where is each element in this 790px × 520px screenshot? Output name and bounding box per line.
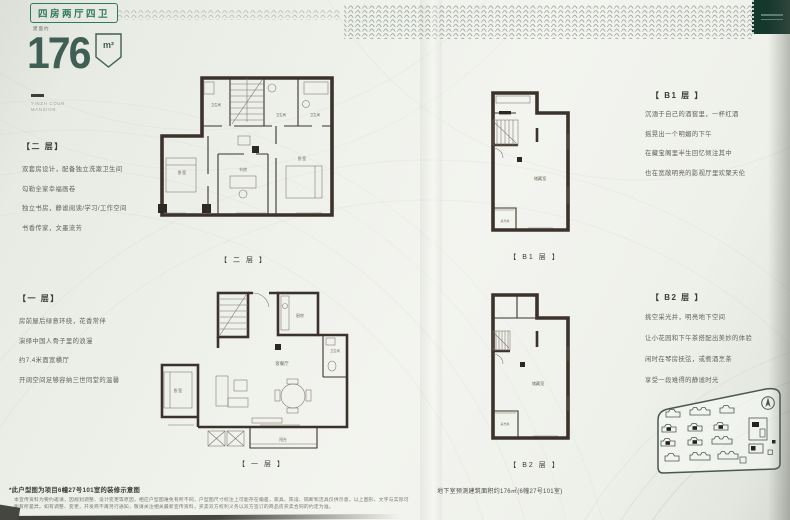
caption-b2: 【 B2 层 】 [478, 460, 592, 470]
page-fold-shadow [420, 0, 442, 520]
b1-line: 在藏宝阁里半生回忆倾注其中 [645, 148, 745, 157]
area-unit: m² [103, 40, 114, 50]
walls-b1 [493, 93, 568, 230]
disclaimer-line1: 本宣传资料为要约邀请，因规划调整、设计变更等原因，相应户型图难免有所不同，户型图… [14, 497, 724, 504]
walls-2f [158, 78, 332, 215]
floor-plan-1f: 卧室 客餐厅 厨房 卫生间 阳台 [160, 286, 364, 462]
floor1-line: 约7.4米面宽横厅 [19, 355, 119, 364]
room-label: 卧室 [178, 169, 186, 176]
b1-line: 摇晃出一个明媚的下午 [645, 129, 745, 138]
room-label: 储藏室 [532, 380, 545, 387]
room-label: 卫生间 [276, 112, 287, 117]
caption-1f: 【 一 层 】 [160, 459, 364, 469]
stairs-icon [493, 120, 518, 145]
section-floor2-heading: 【二 层】 [22, 141, 64, 152]
walls-1f [162, 293, 347, 427]
caption-b1: 【 B1 层 】 [478, 252, 592, 262]
room-label: 采光井 [500, 218, 509, 223]
floor1-line: 演绎中国人骨子里的浪漫 [19, 336, 119, 345]
room-label: 卧室 [174, 387, 182, 394]
floor-plan-b2: 储藏室 采光井 [478, 291, 592, 459]
room-label: 客餐厅 [275, 360, 289, 367]
section-b1-lines: 沉湎于自己的酒窖里，一杯红酒 摇晃出一个明媚的下午 在藏宝阁里半生回忆倾注其中 … [645, 98, 745, 177]
title-badge: 四房两厅四卫 [30, 3, 118, 23]
area-value: 176 [27, 28, 89, 79]
floor2-line: 勾勒全家幸福画卷 [22, 184, 127, 193]
brand-caption: YINZH COUR MANSION [31, 101, 65, 112]
room-label: 卫生间 [211, 102, 222, 107]
b2-line: 挑空采光井，明亮地下空间 [645, 312, 752, 321]
b2-line: 闲时在琴房抚弦，或煮酒烹茶 [645, 354, 752, 363]
disclaimer: 本宣传资料为要约邀请，因规划调整、设计变更等原因，相应户型图难免有所不同，户型图… [14, 497, 724, 512]
disclaimer-line2: 能有所差异。如有调整、变更，开发商不再另行通知，敬请关注相关最新宣传资料，买卖双… [14, 504, 724, 511]
room-label: 储藏室 [534, 175, 547, 182]
stairs-icon [230, 78, 264, 124]
brand-line1: YINZH COUR [31, 101, 65, 107]
stairs-icon [218, 295, 248, 335]
room-label: 厨房 [296, 312, 304, 318]
floor1-line: 房前屋后绿意环绕，花香常伴 [19, 316, 119, 325]
floor-plan-2f: 卧室 卧室 书房 卫生间 卫生间 卫生间 [146, 74, 342, 226]
section-b2-lines: 挑空采光井，明亮地下空间 让小花园和下午茶搭配出美妙的体验 闲时在琴房抚弦，或煮… [645, 300, 752, 384]
area-unit-tag: m² [95, 33, 123, 69]
room-label: 卫生间 [330, 348, 340, 353]
room-label: 卫生间 [310, 112, 321, 117]
right-edge-shadow [768, 0, 790, 520]
room-label: 卧室 [298, 155, 306, 162]
caption-2f: 【 二 层 】 [146, 255, 342, 265]
b2-line: 让小花园和下午茶搭配出美妙的体验 [645, 333, 752, 342]
floor1-line: 开阔空间足够容纳三世同堂的温馨 [19, 375, 119, 384]
section-floor1-heading: 【一 层】 [18, 293, 60, 304]
ac-units [208, 431, 244, 446]
furniture-1f [164, 296, 336, 423]
table-corner [0, 504, 20, 520]
brochure-page: 四房两厅四卫 建面约 176 m² YINZH COUR MANSION 【二 … [0, 0, 790, 520]
section-floor1-lines: 房前屋后绿意环绕，花香常伴 演绎中国人骨子里的浪漫 约7.4米面宽横厅 开阔空间… [19, 305, 119, 384]
room-label: 采光井 [500, 421, 509, 426]
b1-line: 也在宽敞明亮的影视厅里欢聚天伦 [645, 168, 745, 177]
walls-b2 [493, 295, 568, 438]
divider-dash [31, 94, 44, 97]
stairs-icon [493, 331, 510, 350]
brand-line2: MANSION [31, 107, 65, 113]
floor2-line: 书香传家，文墨流芳 [22, 223, 127, 232]
room-label: 书房 [239, 166, 247, 173]
floor2-line: 双套房设计，配备独立洗漱卫生间 [22, 164, 127, 173]
section-floor2-lines: 双套房设计，配备独立洗漱卫生间 勾勒全家幸福画卷 独立书房，静谧阅读/学习/工作… [22, 153, 127, 232]
table-edge [0, 514, 400, 520]
floor-plan-b1: 储藏室 采光井 [478, 86, 592, 248]
basement-footnote: 地下室预测建筑面积约176㎡(6幢27号101室) [437, 486, 563, 495]
room-label: 阳台 [279, 437, 287, 442]
b1-line: 沉湎于自己的酒窖里，一杯红酒 [645, 109, 745, 118]
plan-footnote: *此户型图为项目6幢27号101室的装修示意图 [9, 485, 140, 494]
floor2-line: 独立书房，静谧阅读/学习/工作空间 [22, 203, 127, 212]
